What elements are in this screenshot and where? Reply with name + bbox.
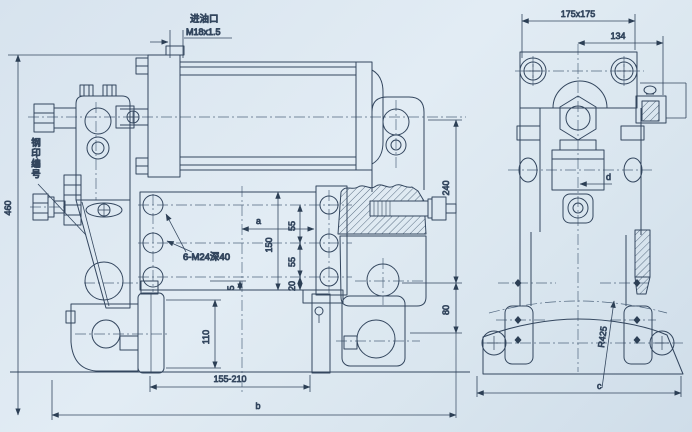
- stamp-number-label: 钢印编号: [31, 137, 41, 181]
- blueprint-sheet: 钢印编号 6-M24深40: [0, 0, 692, 432]
- side-centerlines: [482, 44, 686, 372]
- dim-b: b: [255, 401, 260, 411]
- brake-drawing: 钢印编号 6-M24深40: [0, 0, 692, 432]
- wedge-section: [338, 185, 456, 234]
- oil-inlet-callout: 进油口 M18x1.5: [150, 13, 232, 58]
- dim-240: 240: [441, 180, 451, 195]
- center-plate: [140, 192, 316, 290]
- dim-134: 134: [610, 31, 625, 41]
- top-plate: [520, 52, 637, 108]
- dim-5: 5: [226, 285, 236, 290]
- dim-175x175: 175x175: [561, 9, 596, 19]
- side-view: 175x175 134 d R425 c: [477, 9, 686, 397]
- dim-110: 110: [201, 330, 211, 344]
- front-view: 钢印编号 6-M24深40: [3, 13, 470, 420]
- dim-150: 150: [264, 237, 274, 252]
- dim-c: c: [597, 381, 602, 391]
- hydraulic-cylinder: [136, 46, 383, 177]
- dim-460: 460: [3, 200, 13, 215]
- dim-a: a: [256, 216, 261, 226]
- body-stack: [552, 81, 607, 223]
- base-plate: [482, 319, 683, 374]
- brake-arms: [517, 108, 650, 306]
- dim-155-210: 155-210: [213, 374, 246, 384]
- dim-20: 20: [287, 281, 297, 291]
- dim-80: 80: [441, 305, 451, 315]
- bolt-spec-label: 6-M24深40: [183, 252, 230, 263]
- dim-55-upper: 55: [287, 221, 297, 231]
- dim-55-lower: 55: [287, 257, 297, 267]
- oil-inlet-label: 进油口: [190, 13, 219, 25]
- bolt-spec-callout: 6-M24深40: [166, 214, 230, 263]
- dim-d: d: [606, 172, 611, 182]
- side-bracket: [636, 83, 686, 123]
- oil-inlet-thread-label: M18x1.5: [186, 27, 221, 37]
- bottom-shoes: [10, 281, 470, 373]
- brake-pads: [505, 279, 652, 364]
- left-lever-assembly: [33, 85, 130, 308]
- dim-r425: R425: [596, 326, 609, 349]
